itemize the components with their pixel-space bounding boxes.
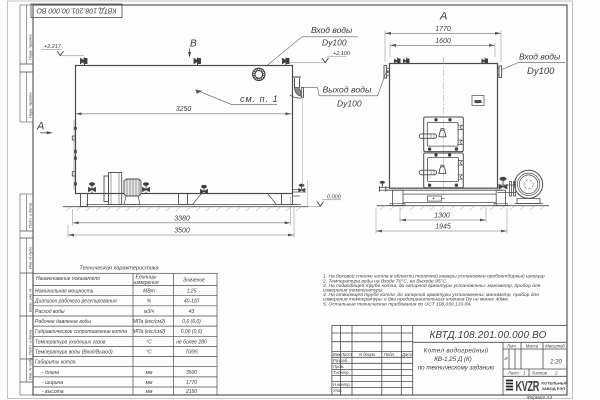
svg-text:В: В [190,39,197,50]
svg-text:3380: 3380 [174,216,190,223]
svg-text:см. п. 1: см. п. 1 [240,94,279,104]
svg-text:43: 43 [189,309,195,315]
svg-text:Лист: Лист [507,371,519,376]
svg-text:Котел водогрейный: Котел водогрейный [424,348,489,355]
svg-text:Н.контр.: Н.контр. [333,382,351,387]
svg-text:И: И [505,356,508,361]
svg-text:Масса: Масса [526,343,539,348]
svg-text:Значение: Значение [183,278,205,284]
svg-text:Номинальная мощность: Номинальная мощность [35,289,94,295]
svg-text:0,06 (0,6): 0,06 (0,6) [181,329,203,335]
svg-text:N докум.: N докум. [359,352,376,357]
svg-text:Вход воды: Вход воды [311,25,353,35]
svg-text:измерения: измерения [133,280,158,286]
svg-text:Габариты котла: Габариты котла [35,360,76,366]
svg-text:Перв. примен.: Перв. примен. [28,33,33,60]
svg-text:Т.контр.: Т.контр. [333,370,350,375]
svg-text:Диапазон рабочего регулировани: Диапазон рабочего регулирования [34,299,117,305]
svg-text:1945: 1945 [435,224,451,231]
svg-text:мм: мм [146,380,153,386]
svg-text:Листов: Листов [531,371,548,376]
svg-text:Взам. инв. N: Взам. инв. N [28,289,33,312]
svg-text:Гидравлическое сопротивление к: Гидравлическое сопротивление котла [35,329,127,335]
svg-text:1300: 1300 [434,213,450,220]
svg-text:°С: °С [146,350,152,356]
svg-text:Формат А3: Формат А3 [527,395,553,400]
svg-text:Техническая характеристика: Техническая характеристика [79,266,158,272]
svg-text:+2.217: +2.217 [44,44,62,50]
svg-text:Разраб.: Разраб. [333,358,348,363]
svg-text:Рабочее давление воды: Рабочее давление воды [35,319,91,325]
svg-text:- длина: - длина [42,370,59,376]
svg-text:0,6 (6,0): 0,6 (6,0) [182,319,201,325]
svg-text:МПа (кгс/см2): МПа (кгс/см2) [133,319,166,325]
svg-text:Инв. N дубл.: Инв. N дубл. [28,246,33,269]
svg-text:Перв. примен.: Перв. примен. [28,91,33,118]
svg-text:1:20: 1:20 [550,360,562,366]
svg-text:1,25: 1,25 [187,289,197,295]
svg-text:Вход воды: Вход воды [519,52,561,62]
svg-text:м3/ч: м3/ч [144,309,155,315]
svg-text:- ширина: - ширина [42,380,63,386]
svg-text:мм: мм [146,370,153,376]
svg-text:КВТД.108.201.00.000 ВО: КВТД.108.201.00.000 ВО [36,6,116,13]
svg-text:1600: 1600 [435,38,451,45]
svg-text:МПа (кгс/см2): МПа (кгс/см2) [133,329,166,335]
svg-text:KVZR: KVZR [475,101,482,104]
svg-text:Температура уходящих газов: Температура уходящих газов [35,339,106,345]
svg-text:Подп. и дата: Подп. и дата [28,202,33,228]
svg-text:%: % [147,299,152,305]
svg-text:Подп.: Подп. [384,352,395,357]
svg-text:Наименование показателя: Наименование показателя [36,276,100,282]
svg-text:1: 1 [523,371,525,376]
svg-text:А: А [439,11,447,23]
svg-text:МВт: МВт [143,289,155,295]
svg-text:1770: 1770 [435,26,451,33]
svg-text:°С: °С [146,339,152,345]
svg-text:Dy100: Dy100 [337,99,362,109]
svg-text:КОТЕЛЬНЫЙ: КОТЕЛЬНЫЙ [542,381,568,386]
svg-text:3500: 3500 [174,228,190,235]
svg-text:40-110: 40-110 [184,299,199,305]
svg-text:1770: 1770 [186,380,197,386]
svg-text:мм: мм [146,389,153,395]
svg-text:КВ-1,25 Д (К): КВ-1,25 Д (К) [434,356,471,363]
svg-text:- высота: - высота [42,389,64,395]
svg-text:Выход воды: Выход воды [323,85,372,95]
svg-text:Dy100: Dy100 [527,66,555,77]
svg-text:3500: 3500 [186,370,197,376]
svg-text:А: А [36,121,44,133]
svg-text:Масштаб: Масштаб [545,343,565,348]
svg-text:Расход воды: Расход воды [35,309,65,315]
svg-text:Дата: Дата [401,352,414,357]
svg-text:Утв.: Утв. [333,388,343,393]
svg-text:3250: 3250 [176,106,192,113]
svg-text:Инв. N подл.: Инв. N подл. [28,357,33,380]
svg-text:5. Остальные технические треб: 5. Остальные технические требования по О… [323,301,472,307]
svg-text:Температура воды (Вход/Выход): Температура воды (Вход/Выход) [35,350,113,356]
svg-text:Лист: Лист [340,352,352,357]
svg-text:не более 280: не более 280 [176,339,207,345]
svg-text:KVZR: KVZR [516,379,540,395]
svg-text:ЗАВОД РЭП: ЗАВОД РЭП [542,386,566,391]
svg-text:КВТД.108.201.00.000 ВО: КВТД.108.201.00.000 ВО [429,330,546,341]
svg-text:Dy100: Dy100 [322,38,347,48]
svg-text:Подп. и дата: Подп. и дата [28,329,33,355]
svg-text:по техническому заданию: по техническому заданию [418,364,495,371]
svg-text:70/95: 70/95 [185,350,198,356]
svg-text:2150: 2150 [185,389,197,395]
svg-text:Пров.: Пров. [333,364,344,369]
svg-text:Лит.: Лит. [506,343,517,348]
